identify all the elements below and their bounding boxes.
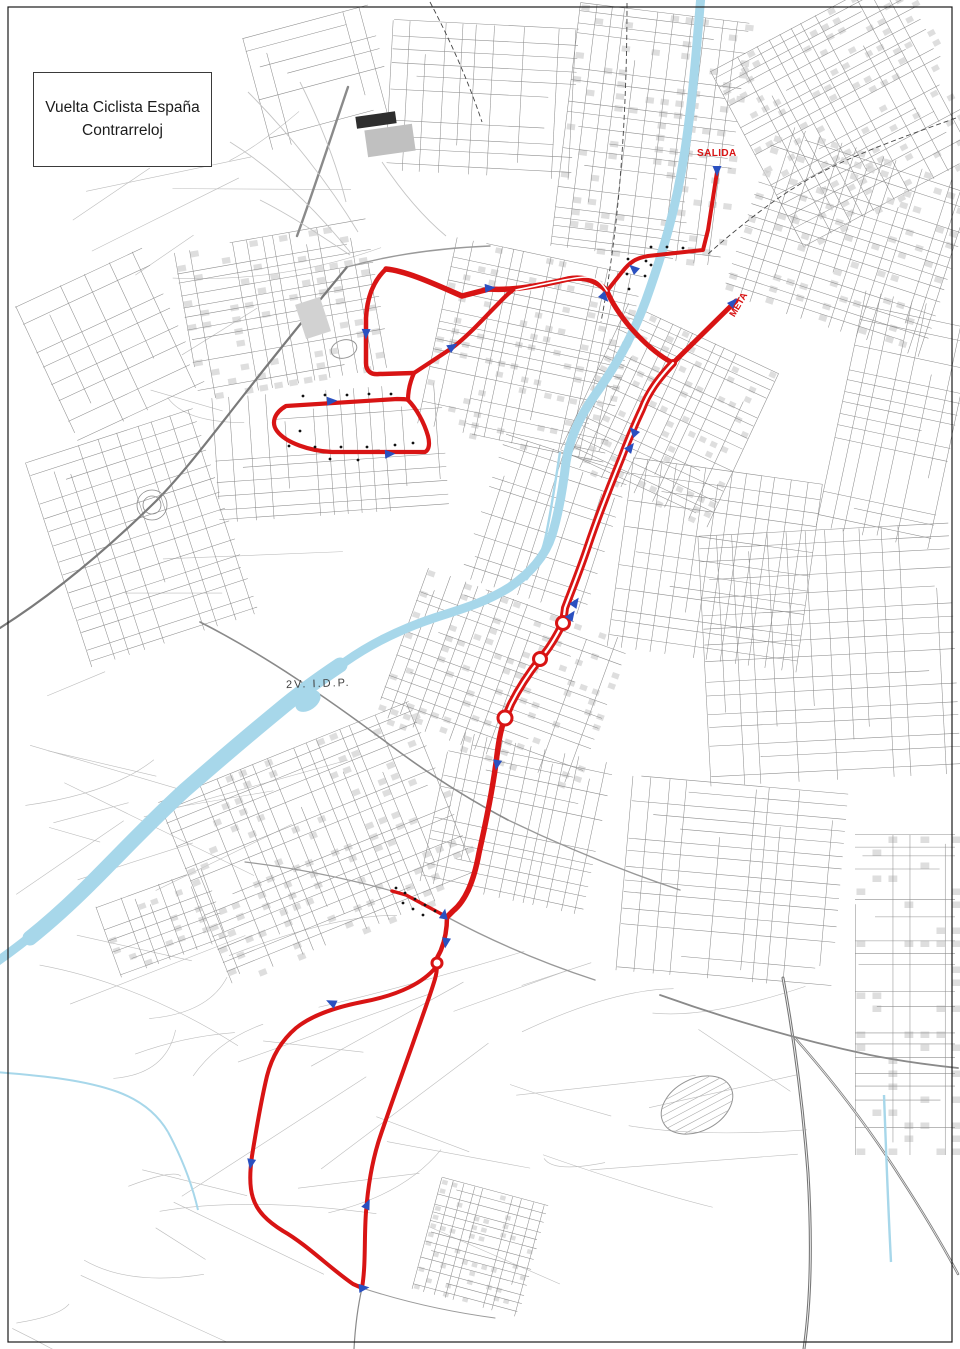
route-tick-dot <box>368 393 371 396</box>
route-tick-dot <box>434 910 437 913</box>
title-line2: Contrarreloj <box>82 120 163 142</box>
route-tick-dot <box>422 914 425 917</box>
route-tick-dot <box>395 887 398 890</box>
route-path <box>408 373 414 400</box>
route-tick-dot <box>650 246 653 249</box>
route-tick-dot <box>424 904 427 907</box>
map-page: Vuelta Ciclista España Contrarreloj SALI… <box>0 0 960 1349</box>
route-tick-dot <box>628 288 631 291</box>
route-path <box>250 967 436 1288</box>
map-border-frame <box>8 7 952 1342</box>
roundabout-marker <box>534 653 547 666</box>
route-path <box>607 172 717 291</box>
route-tick-dot <box>314 446 317 449</box>
title-box: Vuelta Ciclista España Contrarreloj <box>33 72 212 167</box>
route-path <box>366 269 414 374</box>
stream <box>168 1132 198 1210</box>
route-tick-dot <box>412 442 415 445</box>
route-tick-dot <box>302 395 305 398</box>
route-tick-dot <box>346 394 349 397</box>
roundabout-marker <box>432 958 442 968</box>
title-line1: Vuelta Ciclista España <box>45 97 200 119</box>
route-tick-dot <box>627 258 630 261</box>
canal <box>884 1095 891 1262</box>
route-tick-dot <box>390 393 393 396</box>
route-tick-dot <box>299 430 302 433</box>
route-tick-dot <box>357 459 360 462</box>
route-tick-dot <box>404 892 407 895</box>
fields-layer <box>12 111 807 1349</box>
roundabout-marker <box>498 711 512 725</box>
city-map-svg <box>0 0 960 1349</box>
river-layer <box>0 0 891 1262</box>
route-path <box>673 301 736 363</box>
route-path <box>414 291 512 373</box>
route-markers-layer <box>245 166 740 1293</box>
route-tick-dot <box>402 902 405 905</box>
route-tick-dot <box>324 394 327 397</box>
route-path <box>362 965 437 1288</box>
route-tick-dot <box>666 246 669 249</box>
stream <box>0 1072 168 1132</box>
route-tick-dot <box>645 260 648 263</box>
route-tick-dot <box>329 458 332 461</box>
direction-arrow-icon <box>713 166 722 177</box>
route-tick-dot <box>288 445 291 448</box>
streets-layer <box>15 0 960 1317</box>
route-path <box>274 399 429 452</box>
route-tick-dot <box>340 446 343 449</box>
route-tick-dot <box>412 908 415 911</box>
route-tick-dot <box>394 444 397 447</box>
route-tick-dot <box>366 446 369 449</box>
map-frame-layer <box>8 7 952 1342</box>
route-tick-dot <box>682 247 685 250</box>
route-path <box>447 718 505 917</box>
route-tick-dot <box>644 275 647 278</box>
route-tick-dot <box>414 898 417 901</box>
route-tick-dot <box>626 273 629 276</box>
route-tick-dot <box>650 264 653 267</box>
